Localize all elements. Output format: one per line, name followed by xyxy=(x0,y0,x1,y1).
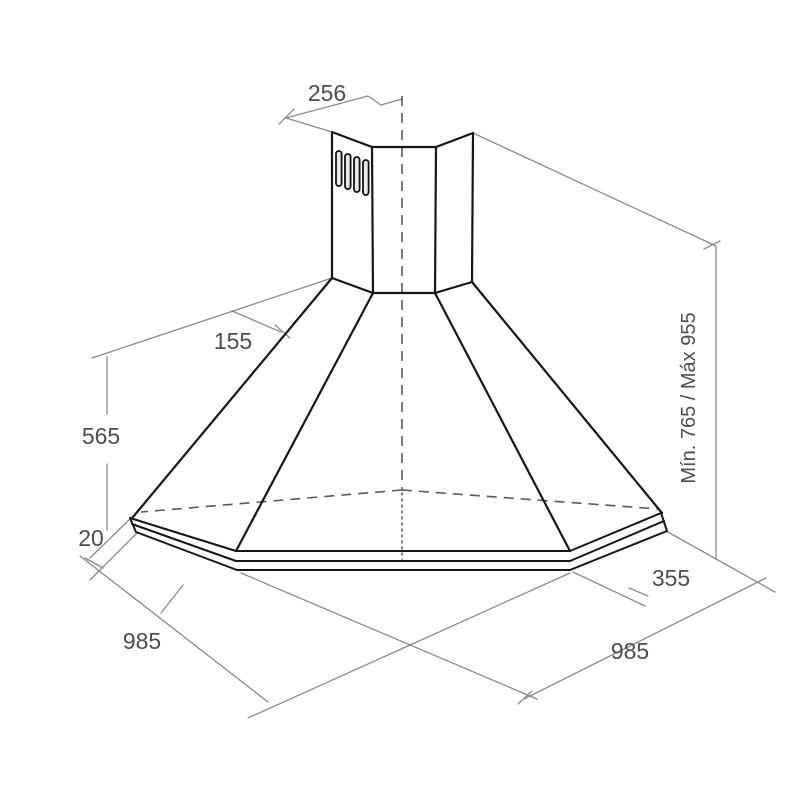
dim-985-left-lines xyxy=(80,556,268,702)
label-total-height-range: Mín. 765 / Máx 955 xyxy=(678,312,700,483)
label-body-height: 565 xyxy=(82,423,120,449)
label-wall-width-left: 985 xyxy=(123,628,161,654)
label-rim-height: 20 xyxy=(78,525,104,551)
canopy-cone xyxy=(133,278,662,551)
label-wall-to-edge: 155 xyxy=(214,328,252,354)
label-chimney-width: 256 xyxy=(308,80,346,106)
hidden-back-edge-left xyxy=(141,490,402,512)
label-wall-width-right: 985 xyxy=(611,638,649,664)
dimension-lines xyxy=(80,96,775,718)
hidden-back-edge-right xyxy=(402,490,658,509)
vent-slots xyxy=(336,151,369,195)
base-rim xyxy=(130,513,667,570)
hood-diagram-svg: 256 155 565 20 985 985 355 Mín. 765 / Má… xyxy=(0,0,800,800)
dim-155-lines xyxy=(92,278,332,358)
label-corner-depth: 355 xyxy=(652,565,690,591)
corner-extension-lines xyxy=(241,573,570,718)
dimension-drawing-canvas: 256 155 565 20 985 985 355 Mín. 765 / Má… xyxy=(0,0,800,800)
dimension-labels: 256 155 565 20 985 985 355 Mín. 765 / Má… xyxy=(78,80,700,664)
